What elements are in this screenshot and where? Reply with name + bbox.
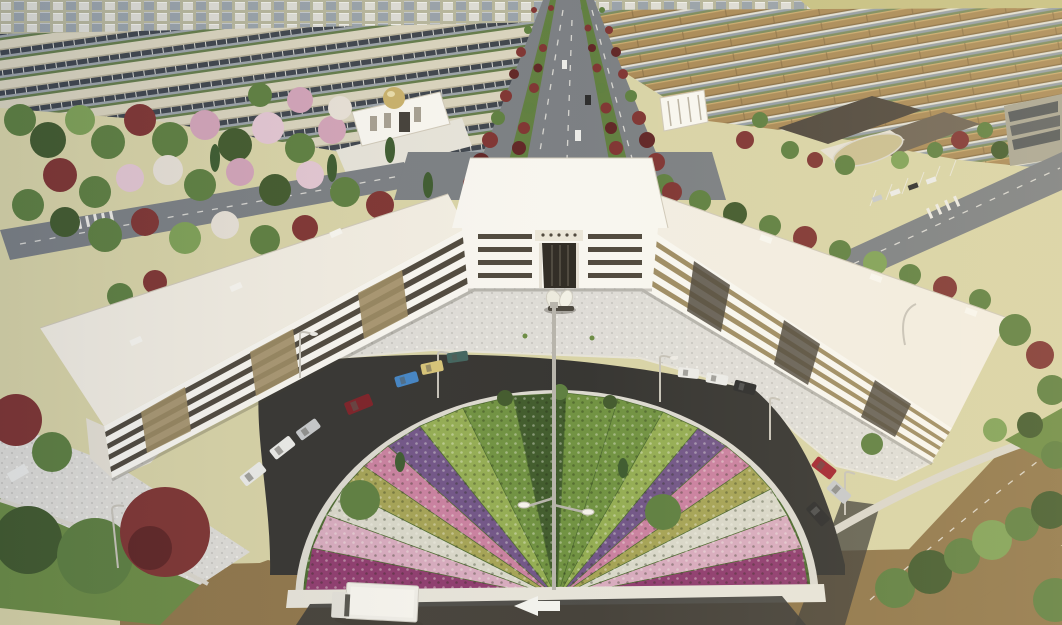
light-overlay <box>0 0 1062 625</box>
rendering-canvas <box>0 0 1062 625</box>
architectural-rendering: Aerial 3D architectural rendering of a w… <box>0 0 1062 625</box>
